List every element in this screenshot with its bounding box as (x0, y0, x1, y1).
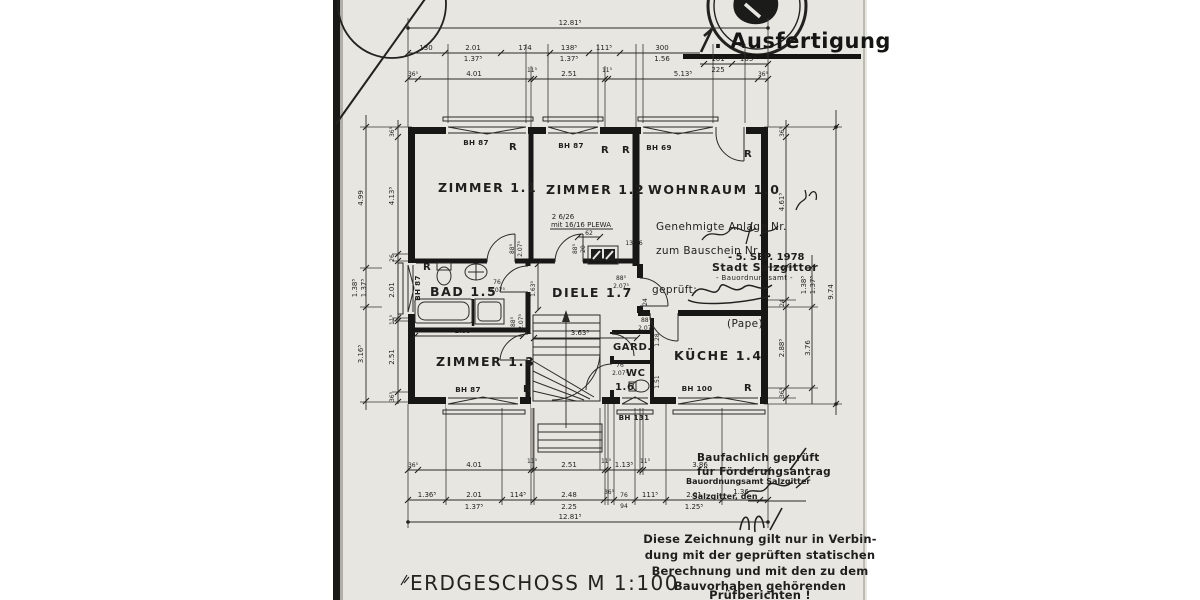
chimney-note-line1: 2 6/26 (552, 213, 575, 221)
door-size-label: 2.07⁵ (612, 370, 628, 377)
dim-label: 1.28 (654, 333, 661, 347)
dim-label: 1.51 (654, 375, 661, 389)
door-size-label: 88⁵ (509, 243, 516, 254)
dim-label: 2.01 (388, 282, 396, 298)
room-label-bad: BAD 1.5 (430, 284, 497, 299)
dim-label: 174 (518, 44, 532, 52)
dim-label: 11⁵ (602, 67, 613, 74)
dim-label: 24 (779, 299, 786, 307)
dim-label: 2.01 (465, 44, 481, 52)
door-size-label: 20 (580, 245, 587, 253)
dim-label: 4.13⁵ (388, 187, 396, 206)
copy-label: . Ausfertigung (714, 29, 891, 53)
opening-door (650, 308, 678, 318)
dim-label: 3.16⁵ (357, 345, 365, 364)
opening (620, 394, 650, 408)
dim-label: 1.38⁵ (351, 279, 359, 298)
dim-label: 12.81⁵ (559, 513, 582, 521)
door-size-label: 88⁵ (510, 316, 517, 327)
dim-label: 2.51 (561, 461, 577, 469)
dim-label: 36⁵ (779, 126, 786, 137)
room-label-wc: WC (626, 368, 646, 379)
window-label-bh87-z12: BH 87 (558, 141, 584, 150)
chimney-flue-label: 13/26 (625, 240, 642, 247)
shutter-mark: R (523, 384, 531, 395)
dim-label: 36⁵ (408, 71, 419, 78)
dim-label: 225 (711, 66, 724, 74)
dim-label: 2.01 (466, 491, 482, 499)
window-label-bh87-bad: BH 87 (413, 275, 422, 301)
window-label-bh69: BH 69 (646, 143, 672, 152)
dim-dot (834, 125, 838, 129)
dim-label: 1.37⁵ (560, 55, 579, 63)
dim-dot (834, 402, 838, 406)
dim-label: 130 (419, 44, 432, 52)
dim-label: 4.01 (466, 461, 482, 469)
room-label-gard: GARD. (613, 342, 652, 353)
dim-label: 4.01 (466, 70, 482, 78)
dim-label: 2.48 (561, 491, 577, 499)
chimney-width: 62 (585, 230, 593, 237)
funding-place-date: Salzgitter, den (692, 492, 758, 501)
window-label-bh87-z13: BH 87 (455, 385, 481, 394)
shutter-mark: R (744, 383, 752, 394)
approval-city: Stadt Salzgitter (712, 261, 818, 274)
door-size-label: 2.07⁵ (517, 241, 524, 257)
dim-label: 94 (620, 503, 628, 510)
dim-label: 5.13⁵ (674, 70, 693, 78)
room-label-wohnraum: WOHNRAUM 1.0 (648, 182, 781, 197)
door-size-label: 88⁵ (616, 275, 627, 282)
drawing-title: ERDGESCHOSS M 1:100 (410, 571, 679, 595)
shutter-mark: R (423, 262, 431, 273)
window-label-bh100: BH 100 (682, 384, 713, 393)
dim-label: 4.99 (357, 190, 365, 206)
door-size-label: 76 (493, 279, 501, 286)
room-label-zimmer-13: ZIMMER 1.3 (436, 354, 535, 369)
disclaimer-line5: Prüfberichten ! (709, 588, 811, 600)
dim-label: 4.61⁵ (778, 193, 786, 212)
dim-label: 101 (711, 55, 724, 63)
dim-label: 36⁵ (758, 71, 769, 78)
dim-label: 24 (642, 298, 649, 306)
dim-label: 2.51 (561, 70, 577, 78)
chimney-note-line2: mit 16/16 PLEWA (551, 221, 611, 229)
dim-label: 36⁵ (389, 391, 396, 402)
dim-label: 36⁵ (408, 462, 419, 469)
dim-label: 11⁵ (527, 67, 538, 74)
opening (446, 123, 528, 137)
dim-label: 26 (389, 254, 396, 262)
dim-label: 1.36⁵ (418, 491, 437, 499)
scan-edge-right (863, 0, 865, 600)
dim-label: 11⁵ (640, 458, 651, 465)
door-size-label: 88⁵ (641, 317, 652, 324)
dim-dot (766, 520, 770, 524)
approval-office: - Bauordnungsamt - (716, 274, 793, 282)
disclaimer-line1: Diese Zeichnung gilt nur in Verbin- (643, 532, 877, 546)
opening (676, 394, 760, 408)
dim-label: 2.88⁵ (455, 327, 474, 335)
window-label-bh87-z11: BH 87 (463, 138, 489, 147)
dim-label: 36⁵ (389, 126, 396, 137)
dim-label: 1.63⁵ (530, 281, 537, 297)
door-size-label: 2.07⁵ (613, 283, 629, 290)
scan-edge-shadow (340, 0, 343, 600)
dim-label: 9.74 (827, 284, 835, 300)
dim-label: 105⁵ (740, 55, 756, 63)
opening (446, 394, 520, 408)
dim-label: 114⁵ (510, 491, 526, 499)
dim-label: 111⁵ (642, 491, 658, 499)
dim-label: 1.56 (654, 55, 670, 63)
door-size-label: 76 (616, 362, 624, 369)
funding-office: Bauordnungsamt Salzgitter (686, 477, 810, 486)
dim-label: 138⁵ (561, 44, 577, 52)
dim-label: 1.37⁵ (465, 503, 484, 511)
dim-label: 1.37⁵ (809, 276, 817, 295)
dim-label: 1.13⁵ (615, 461, 634, 469)
shutter-mark: R (744, 149, 752, 160)
dim-label: 2.88⁵ (778, 339, 786, 358)
approval-checked-label: geprüft: (652, 284, 697, 296)
dim-dot (406, 520, 410, 524)
dim-label: 1.25⁵ (685, 503, 704, 511)
opening-door (555, 256, 583, 266)
shutter-mark: R (509, 142, 517, 153)
dim-label: 2.51 (388, 349, 396, 365)
dim-label: 300 (655, 44, 668, 52)
door-size-label: 2.07⁵ (489, 287, 505, 294)
dim-label: 11⁵ (527, 458, 538, 465)
dim-label: 1.37⁵ (360, 279, 368, 298)
room-label-wc-number: 1.6 (615, 382, 635, 393)
dim-label: 3.63⁵ (571, 329, 590, 337)
room-label-zimmer-11: ZIMMER 1.1 (438, 180, 537, 195)
dim-label: 111⁵ (596, 44, 612, 52)
dim-label: 1.38⁵ (800, 276, 808, 295)
dim-label: 1.37⁵ (464, 55, 483, 63)
dim-dot (766, 26, 770, 30)
dim-label: 36⁵ (779, 387, 786, 398)
dim-label: 12.81⁵ (559, 19, 582, 27)
dim-label: 11 (524, 329, 532, 336)
dim-label: 11⁵ (389, 314, 396, 325)
copy-underline (683, 54, 861, 59)
room-label-kueche: KÜCHE 1.4 (674, 348, 763, 363)
door-size-label: 2.07⁵ (518, 314, 525, 330)
dim-label: 36⁵ (604, 489, 615, 496)
floor-plan-svg: . Ausfertigung (0, 0, 1200, 600)
dim-label: 76 (620, 492, 628, 499)
opening-door (487, 256, 515, 266)
dim-label: 3.76 (804, 340, 812, 356)
shutter-mark: R (622, 145, 630, 156)
door-size-label: 88⁵ (572, 243, 579, 254)
approval-signer: (Pape) (727, 318, 763, 330)
dim-dot (406, 26, 410, 30)
scan-edge-left (333, 0, 340, 600)
shutter-mark: R (601, 145, 609, 156)
dim-label: 2.25 (561, 503, 577, 511)
disclaimer-line2: dung mit der geprüften statischen (645, 548, 876, 562)
dim-label: 11⁵ (601, 458, 612, 465)
disclaimer-line3: Berechnung und mit den zu dem (652, 564, 869, 578)
scanned-floor-plan-page: . Ausfertigung (0, 0, 1200, 600)
room-label-zimmer-12: ZIMMER 1.2 (546, 182, 645, 197)
window-label-bh131: BH 131 (619, 413, 650, 422)
opening (546, 123, 600, 137)
door-size-label: 2.07⁵ (638, 325, 654, 332)
